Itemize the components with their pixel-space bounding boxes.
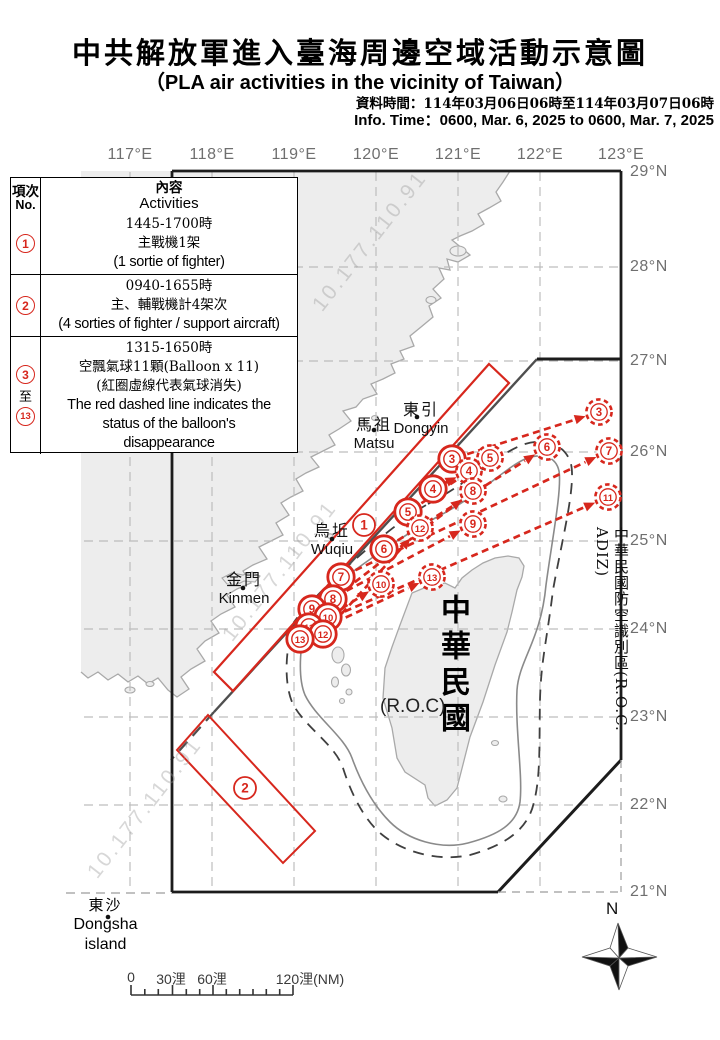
activity-line: 空飄氣球11顆(Balloon x 11): [79, 358, 259, 377]
activities-table: 項次 No. 內容 Activities 11445-1700時主戰機1架(1 …: [10, 177, 298, 453]
svg-text:13: 13: [427, 573, 438, 584]
balloon-end-marker: 3: [586, 399, 611, 424]
activity-line: (1 sortie of fighter): [113, 253, 224, 272]
balloon-end-marker: 10: [368, 571, 393, 596]
longitude-label: 123°E: [596, 146, 646, 164]
adiz-label: 中華民國防空識別區(R.O.C. ADIZ): [593, 527, 632, 777]
track-arrowhead: [584, 457, 596, 466]
balloon-end-marker: 8: [460, 478, 485, 503]
activity-line: 主戰機1架: [138, 234, 201, 253]
svg-text:2: 2: [241, 781, 249, 796]
svg-text:10: 10: [376, 580, 387, 591]
row-number-cell: 1: [11, 213, 41, 274]
place-label-dongsha: 東沙 Dongsha island: [58, 894, 153, 955]
place-zh: 馬祖: [324, 411, 424, 435]
longitude-label: 117°E: [105, 146, 155, 164]
place-label-wuqiu: 烏坵Wuqiu: [282, 517, 382, 558]
balloon-end-marker: 11: [595, 484, 620, 509]
dongsha-en2: island: [85, 936, 127, 953]
latitude-label: 26°N: [630, 443, 668, 461]
table-header-no: 項次 No.: [11, 178, 41, 213]
svg-text:9: 9: [470, 519, 476, 531]
activity-line: status of the balloon's: [103, 415, 236, 434]
track-arrowhead: [583, 503, 595, 512]
dongsha-zh: 東沙: [88, 896, 122, 914]
balloon-end-marker: 6: [534, 434, 559, 459]
balloon-start-marker: 4: [420, 476, 446, 502]
svg-text:11: 11: [603, 493, 614, 504]
longitude-label: 121°E: [433, 146, 483, 164]
compass-rose-icon: [582, 923, 657, 990]
page: { "title": { "zh": "中共解放軍進入臺海周邊空域活動示意圖",…: [0, 0, 720, 1040]
longitude-label: 118°E: [187, 146, 237, 164]
track-arrowhead: [574, 415, 586, 424]
adiz-southeast-boundary: [498, 760, 621, 892]
table-row: 3至131315-1650時空飄氣球11顆(Balloon x 11)(紅圈虛線…: [11, 336, 297, 454]
place-zh: 金門: [194, 566, 294, 590]
activity-line: 0940-1655時: [126, 277, 213, 296]
longitude-label: 120°E: [351, 146, 401, 164]
svg-text:7: 7: [338, 572, 344, 584]
circled-number: 2: [16, 296, 35, 315]
latitude-label: 25°N: [630, 532, 668, 550]
place-zh: 烏坵: [282, 517, 382, 541]
roc-paren-label: (R.O.C): [380, 696, 445, 718]
table-row: 11445-1700時主戰機1架(1 sortie of fighter): [11, 213, 297, 274]
balloon-end-marker: 12: [407, 515, 432, 540]
activity-line: (4 sorties of fighter / support aircraft…: [58, 315, 279, 334]
longitude-label: 122°E: [515, 146, 565, 164]
balloon-end-marker: 5: [477, 445, 502, 470]
place-label-kinmen: 金門Kinmen: [194, 566, 294, 607]
latitude-label: 23°N: [630, 708, 668, 726]
row-content-cell: 1445-1700時主戰機1架(1 sortie of fighter): [41, 213, 297, 274]
track-arrowhead: [449, 531, 461, 540]
place-label-matsu: 馬祖Matsu: [324, 411, 424, 452]
activity-line: 1315-1650時: [126, 339, 213, 358]
svg-text:5: 5: [487, 453, 494, 465]
activity-line: (紅圈虛線代表氣球消失): [96, 377, 242, 396]
balloon-end-marker: 7: [596, 438, 621, 463]
svg-text:4: 4: [466, 466, 473, 478]
scale-label: 60浬: [172, 969, 252, 989]
dongsha-en1: Dongsha: [73, 916, 137, 933]
table-header-content: 內容 Activities: [41, 178, 297, 213]
place-en: Wuqiu: [282, 541, 382, 558]
activity-line: disappearance: [123, 434, 214, 453]
svg-text:8: 8: [470, 486, 477, 498]
latitude-label: 29°N: [630, 163, 668, 181]
activity-line: 1445-1700時: [126, 215, 213, 234]
place-en: Matsu: [324, 435, 424, 452]
svg-text:12: 12: [318, 630, 329, 641]
table-row: 20940-1655時主、輔戰機計4架次(4 sorties of fighte…: [11, 274, 297, 336]
svg-text:13: 13: [295, 635, 306, 646]
balloon-end-marker: 13: [419, 564, 444, 589]
compass-north-label: N: [606, 899, 618, 919]
row-content-cell: 0940-1655時主、輔戰機計4架次(4 sorties of fighter…: [41, 275, 297, 336]
activity-area-number: 2: [234, 777, 256, 799]
watermark-text: 10.177.110.91: [83, 733, 207, 883]
balloon-start-marker: 13: [287, 626, 313, 652]
scale-label: 120浬(NM): [270, 969, 350, 989]
longitude-label: 119°E: [269, 146, 319, 164]
latitude-label: 28°N: [630, 258, 668, 276]
svg-text:3: 3: [596, 407, 602, 419]
latitude-label: 24°N: [630, 620, 668, 638]
balloon-end-marker: 9: [460, 511, 485, 536]
circled-number: 3: [16, 365, 35, 384]
svg-text:3: 3: [449, 454, 455, 466]
place-en: Kinmen: [194, 590, 294, 607]
circled-number: 1: [16, 234, 35, 253]
row-number-cell: 2: [11, 275, 41, 336]
row-content-cell: 1315-1650時空飄氣球11顆(Balloon x 11)(紅圈虛線代表氣球…: [41, 337, 297, 454]
svg-text:7: 7: [606, 446, 612, 458]
latitude-label: 27°N: [630, 352, 668, 370]
circled-number: 13: [16, 407, 35, 426]
latitude-label: 22°N: [630, 796, 668, 814]
activity-line: The red dashed line indicates the: [67, 396, 271, 415]
svg-text:5: 5: [405, 507, 412, 519]
svg-text:12: 12: [415, 524, 426, 535]
svg-text:6: 6: [544, 442, 550, 454]
latitude-label: 21°N: [630, 883, 668, 901]
svg-text:4: 4: [430, 484, 437, 496]
row-number-cell: 3至13: [11, 337, 41, 454]
range-char: 至: [19, 386, 32, 405]
activity-line: 主、輔戰機計4架次: [111, 296, 228, 315]
